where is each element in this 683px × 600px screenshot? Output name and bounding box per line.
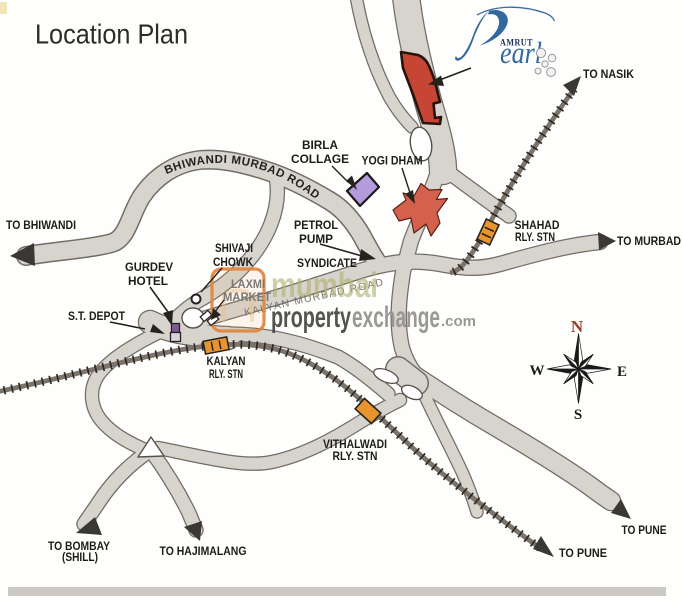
svg-text:TO HAJIMALANG: TO HAJIMALANG bbox=[160, 546, 247, 558]
svg-text:mumbai: mumbai bbox=[271, 266, 378, 305]
svg-text:GURDEV: GURDEV bbox=[125, 262, 173, 274]
svg-text:Location Plan: Location Plan bbox=[35, 19, 188, 50]
svg-text:YOGI DHAM: YOGI DHAM bbox=[362, 156, 423, 168]
svg-text:property: property bbox=[271, 301, 351, 334]
svg-text:N: N bbox=[571, 317, 584, 336]
svg-text:.com: .com bbox=[441, 313, 476, 330]
svg-text:TO NASIK: TO NASIK bbox=[583, 69, 635, 81]
svg-text:SYNDICATE: SYNDICATE bbox=[297, 258, 357, 270]
svg-text:TO BHIWANDI: TO BHIWANDI bbox=[6, 220, 76, 232]
svg-text:RLY. STN: RLY. STN bbox=[209, 369, 243, 381]
svg-text:LAXMI: LAXMI bbox=[231, 279, 265, 291]
svg-text:AMRUT: AMRUT bbox=[500, 39, 533, 49]
svg-text:KALYAN: KALYAN bbox=[207, 356, 246, 368]
svg-text:BIRLA: BIRLA bbox=[302, 140, 338, 152]
svg-text:SHAHAD: SHAHAD bbox=[515, 220, 560, 232]
svg-text:(SHILL): (SHILL) bbox=[62, 552, 98, 564]
svg-text:PETROL: PETROL bbox=[294, 220, 338, 232]
svg-text:CHOWK: CHOWK bbox=[213, 257, 254, 269]
svg-text:S: S bbox=[574, 407, 582, 423]
svg-text:VITHALWADI: VITHALWADI bbox=[323, 439, 387, 451]
svg-text:W: W bbox=[530, 363, 545, 379]
svg-text:PUMP: PUMP bbox=[299, 234, 333, 246]
svg-text:E: E bbox=[617, 364, 627, 380]
svg-text:S.T. DEPOT: S.T. DEPOT bbox=[68, 311, 125, 323]
svg-text:COLLAGE: COLLAGE bbox=[291, 154, 349, 166]
svg-text:RLY. STN: RLY. STN bbox=[333, 451, 378, 463]
svg-text:MARKET: MARKET bbox=[223, 292, 271, 304]
svg-text:TO PUNE: TO PUNE bbox=[622, 525, 667, 537]
svg-text:TO PUNE: TO PUNE bbox=[559, 548, 607, 560]
svg-text:exchange: exchange bbox=[352, 301, 440, 334]
svg-text:TO MURBAD: TO MURBAD bbox=[617, 236, 681, 248]
svg-text:RLY. STN: RLY. STN bbox=[515, 232, 555, 244]
svg-text:SHIVAJI: SHIVAJI bbox=[215, 243, 253, 255]
svg-text:HOTEL: HOTEL bbox=[128, 276, 168, 288]
